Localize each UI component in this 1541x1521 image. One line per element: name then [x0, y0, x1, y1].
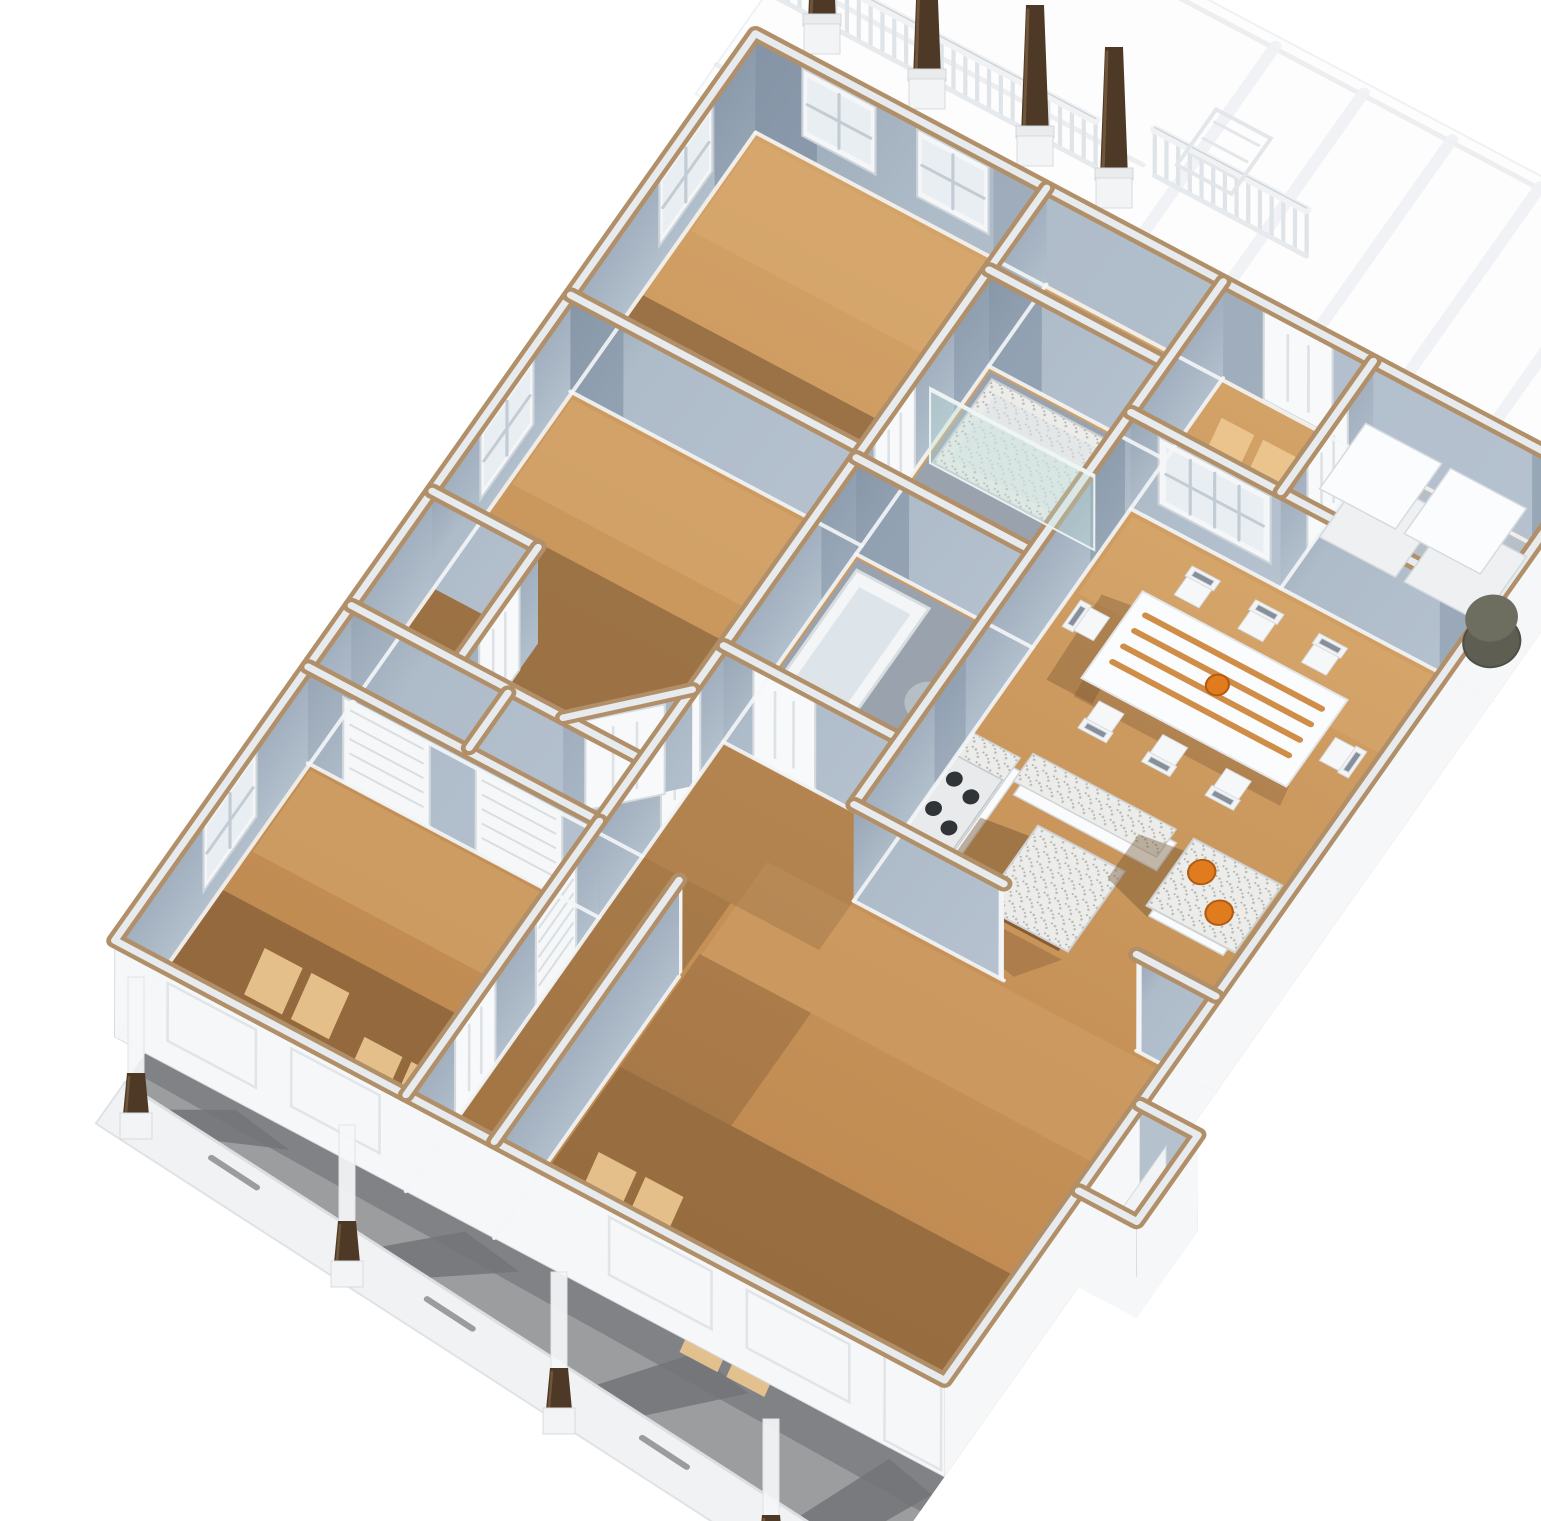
- column-pedestal: [1096, 178, 1132, 208]
- house-dollhouse-view: [0, 0, 1541, 1521]
- porch-column: [551, 1272, 567, 1378]
- porch-column: [763, 1419, 779, 1521]
- porch-column: [339, 1125, 355, 1231]
- column-pedestal: [909, 79, 945, 109]
- column-pedestal: [543, 1408, 575, 1434]
- column-pedestal: [120, 1113, 152, 1139]
- column-pedestal: [804, 24, 840, 54]
- floorplan-3d-render: [0, 0, 1541, 1521]
- porch-column: [128, 977, 144, 1083]
- column-pedestal: [1017, 136, 1053, 166]
- column-pedestal: [331, 1261, 363, 1287]
